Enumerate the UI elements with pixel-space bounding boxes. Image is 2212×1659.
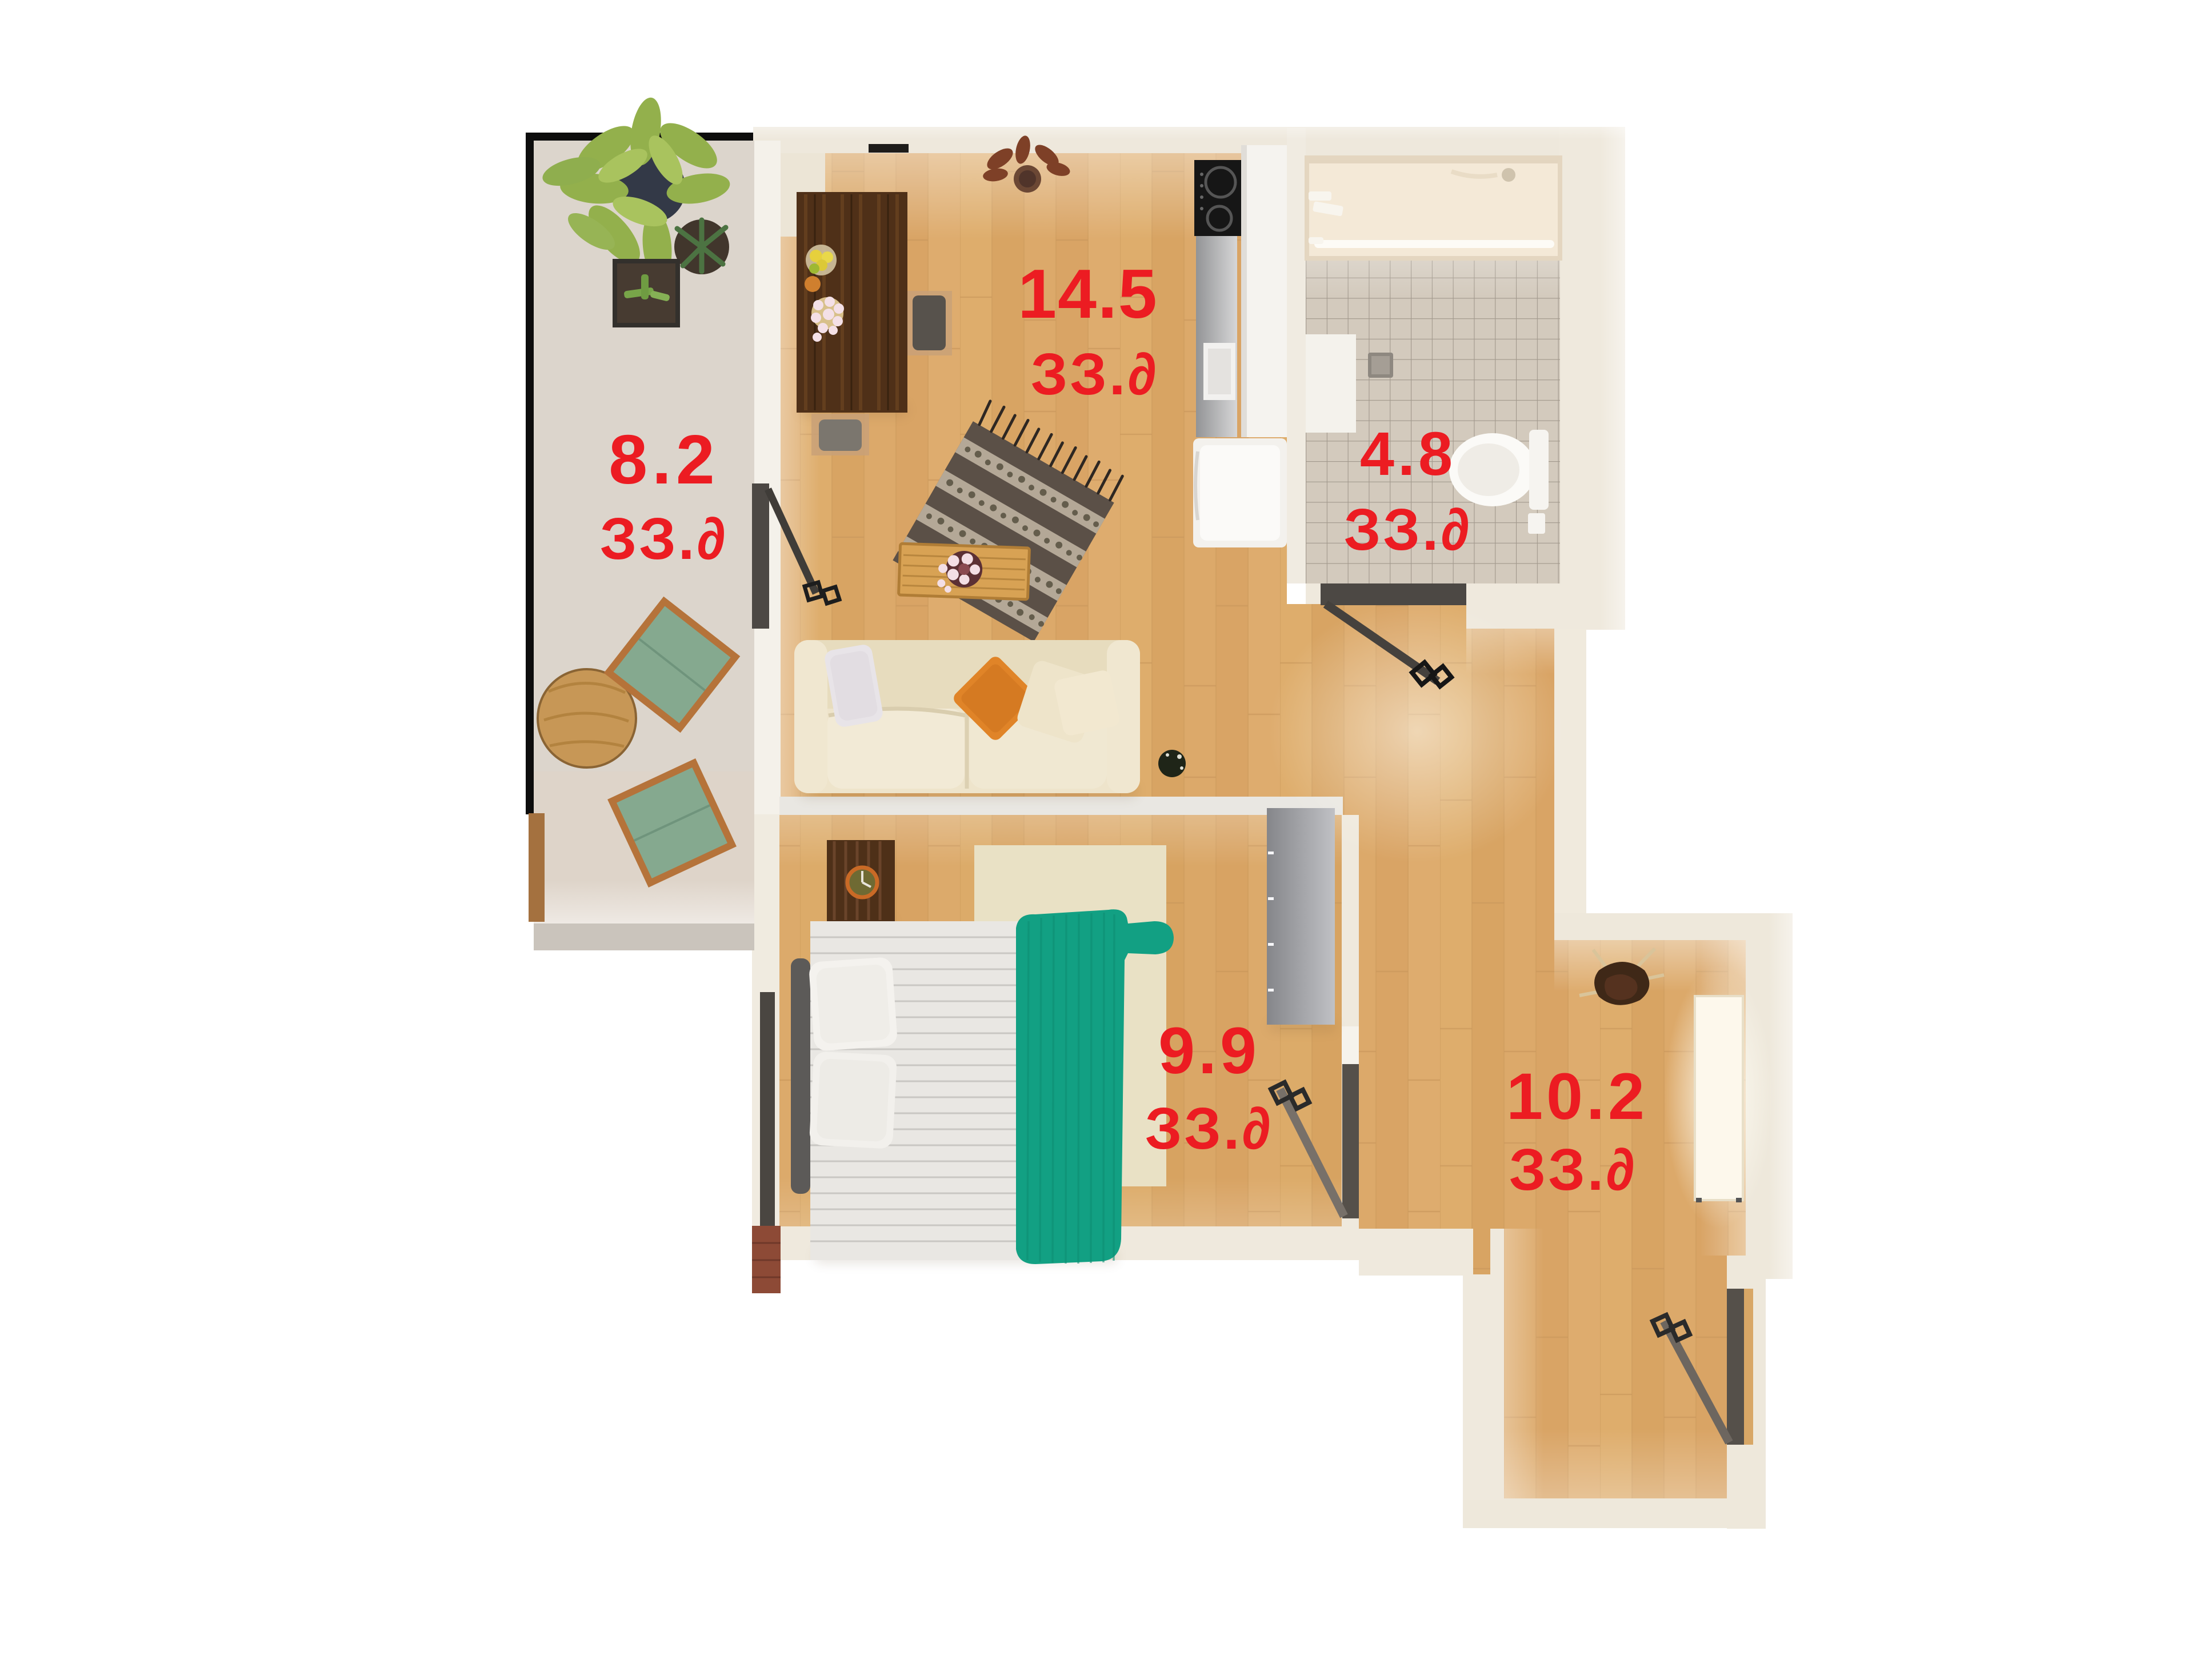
svg-text:4.8: 4.8 bbox=[1360, 419, 1456, 488]
svg-text:10.2: 10.2 bbox=[1506, 1060, 1648, 1133]
svg-text:8.2: 8.2 bbox=[609, 421, 719, 498]
svg-text:ЗЗ.∂: ЗЗ.∂ bbox=[1031, 341, 1159, 407]
svg-text:14.5: 14.5 bbox=[1018, 255, 1158, 333]
svg-text:ЗЗ.∂: ЗЗ.∂ bbox=[600, 506, 729, 571]
svg-text:ЗЗ.∂: ЗЗ.∂ bbox=[1344, 497, 1473, 562]
svg-text:ЗЗ.∂: ЗЗ.∂ bbox=[1145, 1096, 1274, 1161]
svg-text:ЗЗ.∂: ЗЗ.∂ bbox=[1509, 1137, 1638, 1202]
svg-text:9.9: 9.9 bbox=[1158, 1014, 1260, 1088]
